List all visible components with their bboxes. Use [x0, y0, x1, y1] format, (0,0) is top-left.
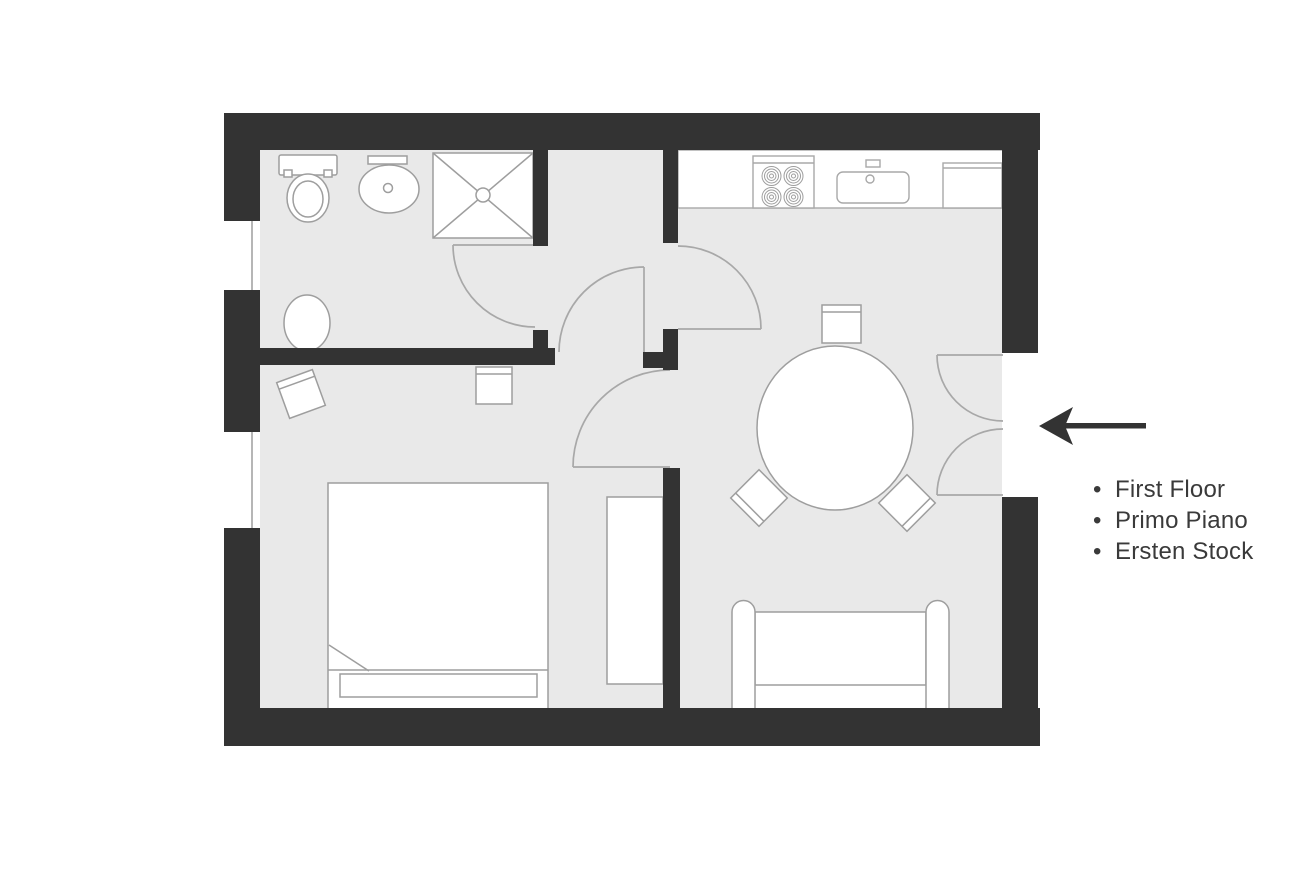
sink-shelf	[368, 156, 407, 164]
kitchen-sink-soap	[866, 160, 880, 167]
bidet	[284, 295, 330, 351]
legend-label: First Floor	[1115, 474, 1225, 505]
wall-bottom	[224, 708, 1040, 746]
wall-bathroom-right	[533, 150, 548, 246]
sofa-arm-left	[732, 601, 755, 711]
wall-bedroom-right	[663, 468, 680, 708]
wall-left-lower	[224, 528, 260, 708]
wardrobe	[607, 497, 663, 684]
legend-label: Ersten Stock	[1115, 536, 1253, 567]
legend: • First Floor • Primo Piano • Ersten Sto…	[1093, 474, 1253, 567]
window-opening	[224, 221, 260, 290]
wall-right-upper	[1002, 113, 1038, 353]
wall-left-upper	[224, 113, 260, 221]
arrow-shaft	[1062, 423, 1146, 429]
window-bathroom	[224, 221, 260, 290]
wall-hall-kitchen	[663, 150, 678, 243]
floor-plan-canvas: • First Floor • Primo Piano • Ersten Sto…	[0, 0, 1310, 875]
legend-item-primo-piano: • Primo Piano	[1093, 505, 1253, 536]
legend-item-ersten-stock: • Ersten Stock	[1093, 536, 1253, 567]
wall-top	[224, 113, 1040, 150]
entrance-threshold	[1002, 353, 1042, 497]
toilet-hinge-right	[324, 170, 332, 177]
bullet-icon: •	[1093, 505, 1115, 536]
wall-right-lower	[1002, 497, 1038, 708]
sofa-seat	[755, 612, 926, 685]
wall-left-middle	[224, 290, 260, 432]
kitchen-fixtures	[678, 150, 1004, 208]
sofa	[732, 601, 949, 711]
shower-drain	[476, 188, 490, 202]
toilet-hinge-left	[284, 170, 292, 177]
bathroom-sink-drain	[384, 184, 393, 193]
toilet-bowl-inner	[293, 181, 323, 217]
dining-chair-top	[822, 305, 861, 343]
fridge	[943, 163, 1002, 208]
legend-label: Primo Piano	[1115, 505, 1248, 536]
bedroom-stool	[476, 367, 512, 404]
wall-bathroom-bedroom-divider	[260, 348, 555, 365]
dining-table	[757, 346, 913, 510]
entrance-arrow	[1039, 407, 1146, 445]
window-bedroom	[224, 432, 260, 528]
kitchen-sink-faucet	[866, 175, 874, 183]
sofa-arm-right	[926, 601, 949, 711]
floor-plan-svg	[0, 0, 1310, 875]
window-opening	[224, 432, 260, 528]
bullet-icon: •	[1093, 474, 1115, 505]
wall-kitchen-elbow-foot	[643, 352, 678, 368]
bed-footboard	[340, 674, 537, 697]
bullet-icon: •	[1093, 536, 1115, 567]
legend-item-first-floor: • First Floor	[1093, 474, 1253, 505]
